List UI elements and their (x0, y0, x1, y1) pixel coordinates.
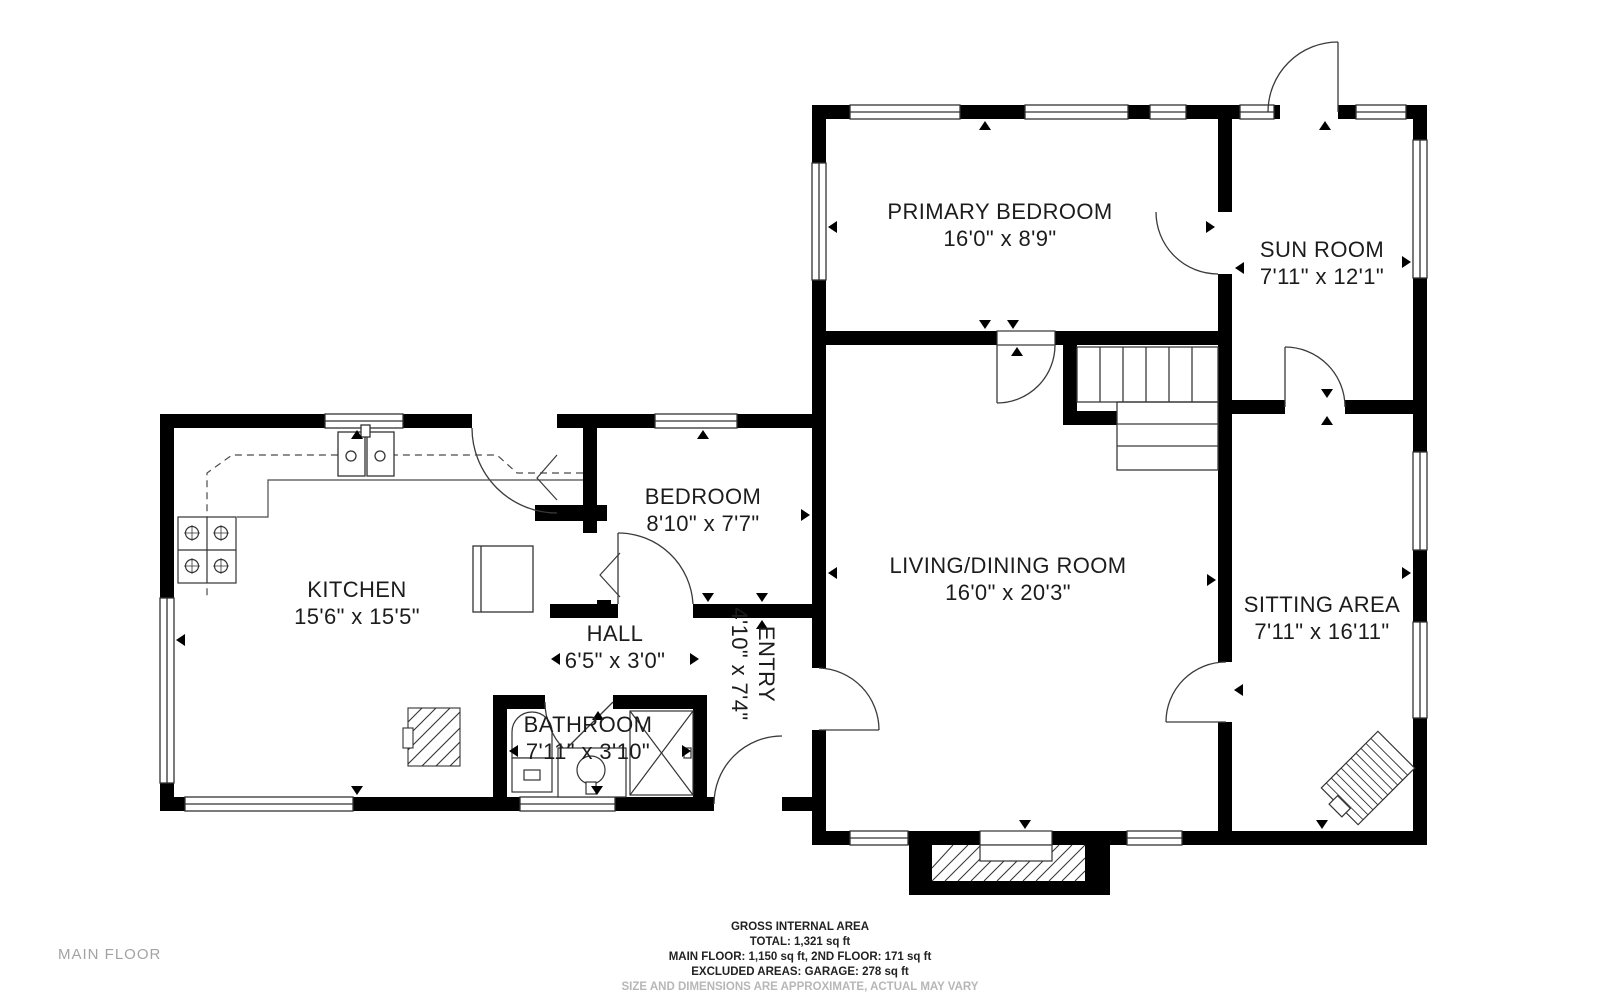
room-name: BEDROOM (645, 483, 761, 510)
floor-plan-page: PRIMARY BEDROOM 16'0" x 8'9" SUN ROOM 7'… (0, 0, 1600, 999)
room-name: LIVING/DINING ROOM (890, 552, 1127, 579)
room-dims: 15'6" x 15'5" (294, 603, 420, 630)
fridge-icon (473, 546, 533, 612)
walls (160, 105, 1427, 895)
total-area: TOTAL: 1,321 sq ft (0, 935, 1600, 950)
room-label-bathroom: BATHROOM 7'11" x 3'10" (524, 711, 653, 765)
room-dims: 16'0" x 20'3" (890, 579, 1127, 606)
disclaimer: SIZE AND DIMENSIONS ARE APPROXIMATE, ACT… (0, 980, 1600, 995)
room-name: BATHROOM (524, 711, 653, 738)
room-label-primary-bedroom: PRIMARY BEDROOM 16'0" x 8'9" (887, 198, 1112, 252)
area-summary: GROSS INTERNAL AREA TOTAL: 1,321 sq ft M… (0, 920, 1600, 995)
room-dims: 4'10" x 7'4" (726, 607, 753, 720)
gross-internal-area-title: GROSS INTERNAL AREA (0, 920, 1600, 935)
fireplace-hearth (403, 708, 460, 766)
room-label-bedroom: BEDROOM 8'10" x 7'7" (645, 483, 761, 537)
room-name: KITCHEN (294, 576, 420, 603)
room-label-kitchen: KITCHEN 15'6" x 15'5" (294, 576, 420, 630)
excluded-areas: EXCLUDED AREAS: GARAGE: 278 sq ft (0, 965, 1600, 980)
wood-stove-icon (1317, 731, 1415, 829)
room-name: PRIMARY BEDROOM (887, 198, 1112, 225)
floor-areas: MAIN FLOOR: 1,150 sq ft, 2ND FLOOR: 171 … (0, 950, 1600, 965)
room-dims: 16'0" x 8'9" (887, 225, 1112, 252)
room-label-entry: ENTRY 4'10" x 7'4" (726, 607, 780, 720)
room-name: ENTRY (753, 607, 780, 720)
room-name: SITTING AREA (1244, 591, 1400, 618)
room-label-hall: HALL 6'5" x 3'0" (565, 620, 666, 674)
stove-icon (178, 517, 236, 583)
closet-rod-icons (537, 455, 620, 597)
staircase (1077, 347, 1218, 470)
room-label-living-dining: LIVING/DINING ROOM 16'0" x 20'3" (890, 552, 1127, 606)
room-dims: 7'11" x 12'1" (1260, 263, 1384, 290)
room-label-sitting-area: SITTING AREA 7'11" x 16'11" (1244, 591, 1400, 645)
room-dims: 7'11" x 16'11" (1244, 618, 1400, 645)
room-dims: 6'5" x 3'0" (565, 647, 666, 674)
floor-plan-drawing (0, 0, 1600, 999)
porch-steps (932, 845, 1085, 881)
room-name: SUN ROOM (1260, 236, 1384, 263)
kitchen-sink (338, 425, 394, 476)
room-dims: 7'11" x 3'10" (524, 738, 653, 765)
room-dims: 8'10" x 7'7" (645, 510, 761, 537)
room-name: HALL (565, 620, 666, 647)
room-label-sun-room: SUN ROOM 7'11" x 12'1" (1260, 236, 1384, 290)
